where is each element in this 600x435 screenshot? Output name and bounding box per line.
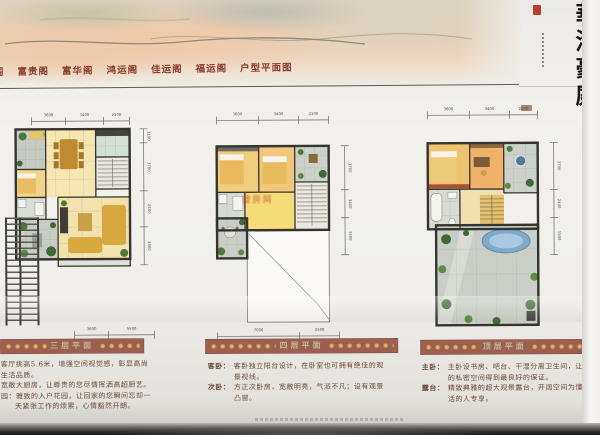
fine-print-smudge [255, 418, 405, 421]
dim-label: 3600 [444, 106, 454, 111]
floorplan-top-level: 3600 3400 2100 3700 2400 1500 [401, 99, 577, 345]
desc-line: 园：雅致的入户花园，让回家的您瞬间忘却一 [1, 390, 153, 401]
dim-label: 2100 [519, 106, 529, 111]
desc-label: 露台： [422, 383, 448, 404]
desc-text: 主卧设书房、吧台、干湿分离卫生间，让主人的私密空间得到最良好的保证。 [448, 361, 600, 383]
page-bottom-edge [0, 423, 600, 435]
desc-item: 次卧： 方正次卧房，宽敞明亮，气派不凡；设有观景凸窗。 [208, 382, 390, 404]
dim-label: 2100 [112, 112, 122, 117]
desc-item: 客卧： 客卧独立阳台设计，在卧室也可拥有绝佳的观景视线。 [208, 361, 390, 383]
desc-level3: 客厅挑高5.6米，增强空间视觉感，彰显高尚 生活品质。 宽敞大厨房，让尊贵的您尽… [1, 359, 153, 412]
dim-label: 2400 [557, 199, 562, 209]
exterior-staircase [5, 217, 40, 325]
desc-level4: 客卧： 客卧独立阳台设计，在卧室也可拥有绝佳的观景视线。 次卧： 方正次卧房，宽… [208, 361, 390, 404]
desc-text: 客卧独立阳台设计，在卧室也可拥有绝佳的观景视线。 [234, 361, 386, 383]
section-banner-level4: 四层平面 [206, 338, 398, 353]
banner-ornament [328, 342, 394, 350]
dim-label: 3700 [348, 163, 353, 173]
dim-label: 1500 [557, 231, 562, 241]
dim-label: 7000 [254, 327, 264, 332]
floorplans-row: 3600 3400 2100 1100 3700 2400 3300 3600 … [0, 0, 600, 435]
desc-text: 精致典雅的超大观景露台，开阔空间为懂得生活的人专享。 [448, 382, 600, 404]
banner-ornament [531, 343, 585, 351]
desc-top-level: 主卧： 主卧设书房、吧台、干湿分离卫生间，让主人的私密空间得到最良好的保证。 露… [422, 361, 600, 404]
desc-label: 次卧： [208, 382, 234, 403]
dim-label: 2400 [147, 204, 152, 214]
photo-watermark: 搜房网 [242, 193, 274, 205]
section-banner-top-level: 顶层平面 [421, 339, 589, 354]
dim-label: 3700 [147, 162, 152, 172]
dim-label: 3600 [87, 326, 97, 331]
banner-title-level3: 三层平面 [50, 342, 94, 350]
dim-label: 1100 [147, 131, 152, 141]
banner-ornament [425, 343, 479, 351]
desc-line: 天紧张工作的烦累，心情豁然开朗。 [1, 401, 153, 412]
floorplan-level4: 3600 3400 2100 3700 3400 1500 7000 2100 [202, 104, 371, 345]
desc-text: 方正次卧房，宽敞明亮，气派不凡；设有观景凸窗。 [234, 382, 386, 404]
section-banner-level3: 三层平面 [1, 339, 144, 354]
brochure-page: 阁 富贵阁 富华阁 鸿运阁 佳运阁 福运阁 户型平面图 華港豪庭 3600 34… [0, 0, 600, 435]
banner-ornament [210, 342, 276, 350]
desc-line: 生活品质。 [1, 369, 153, 380]
desc-line: 宽敞大厨房，让尊贵的您尽情挥洒高超厨艺。 [1, 380, 153, 391]
dim-label: 3700 [557, 161, 562, 171]
dim-label: 5500 [127, 326, 137, 331]
dim-label: 3400 [485, 106, 495, 111]
dim-label: 2100 [309, 111, 319, 116]
desc-line: 客厅挑高5.6米，增强空间视觉感，彰显高尚 [1, 359, 153, 370]
dim-label: 3400 [348, 199, 353, 209]
desc-item: 主卧： 主卧设书房、吧台、干湿分离卫生间，让主人的私密空间得到最良好的保证。 [422, 361, 600, 383]
dim-label: 3400 [80, 112, 90, 117]
dim-label: 3600 [44, 112, 54, 117]
dim-label: 2100 [315, 327, 325, 332]
desc-label: 主卧： [422, 362, 448, 383]
desc-item: 露台： 精致典雅的超大观景露台，开阔空间为懂得生活的人专享。 [422, 382, 600, 404]
banner-ornament [98, 342, 140, 350]
dim-label: 3300 [147, 241, 152, 251]
dim-label: 3600 [233, 111, 243, 116]
desc-label: 客卧： [208, 361, 234, 382]
dim-label: 3400 [274, 111, 284, 116]
dim-label: 1500 [348, 231, 353, 241]
banner-title-level4: 四层平面 [280, 342, 324, 350]
banner-title-top-level: 顶层平面 [483, 343, 527, 351]
page-right-margin [582, 0, 600, 435]
banner-ornament [5, 342, 47, 350]
